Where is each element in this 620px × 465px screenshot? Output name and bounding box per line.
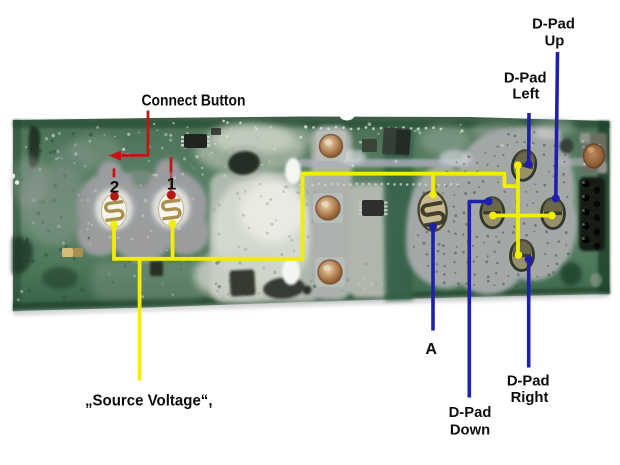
svg-text:2: 2 bbox=[110, 178, 119, 197]
svg-text:Up: Up bbox=[545, 34, 565, 50]
svg-text:Right: Right bbox=[511, 390, 549, 406]
svg-text:Down: Down bbox=[450, 423, 490, 439]
svg-text:Left: Left bbox=[512, 87, 539, 103]
svg-text:Connect Button: Connect Button bbox=[142, 93, 246, 110]
svg-text:D-Pad: D-Pad bbox=[532, 16, 575, 32]
svg-text:D-Pad: D-Pad bbox=[507, 374, 550, 390]
svg-text:D-Pad: D-Pad bbox=[449, 405, 492, 421]
svg-text:A: A bbox=[425, 341, 437, 358]
svg-text:D-Pad: D-Pad bbox=[504, 71, 547, 87]
svg-text:„Source Voltage“,: „Source Voltage“, bbox=[85, 393, 213, 410]
svg-text:1: 1 bbox=[167, 175, 176, 194]
